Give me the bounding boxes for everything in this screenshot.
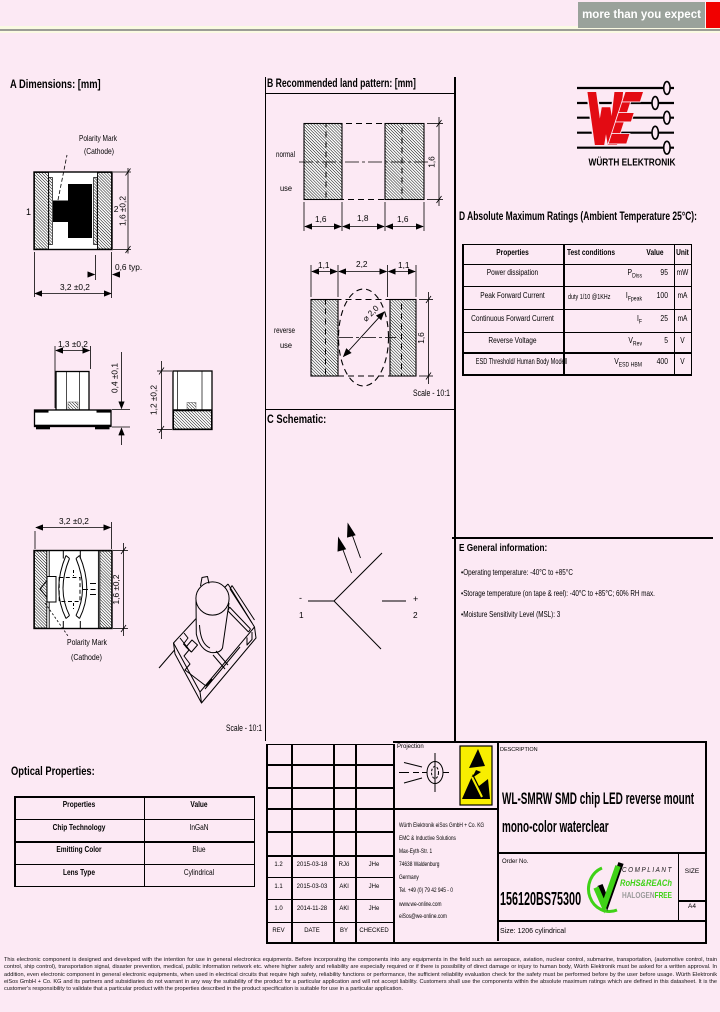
svg-text:1,1: 1,1 — [318, 260, 330, 270]
svg-text:use: use — [280, 183, 292, 193]
svg-text:1,6: 1,6 — [427, 156, 437, 168]
svg-text:1,6: 1,6 — [397, 214, 409, 224]
svg-text:2: 2 — [413, 610, 418, 620]
svg-text:1,1: 1,1 — [398, 260, 410, 270]
svg-text:1: 1 — [299, 610, 304, 620]
svg-text:1,6: 1,6 — [416, 332, 426, 344]
svg-text:2,2: 2,2 — [356, 259, 368, 269]
svg-text:reverse: reverse — [274, 325, 295, 335]
svg-text:normal: normal — [276, 149, 295, 159]
svg-text:1,8: 1,8 — [357, 213, 369, 223]
svg-text:1,6: 1,6 — [315, 214, 327, 224]
svg-text:use: use — [280, 340, 292, 350]
svg-text:-: - — [299, 593, 302, 603]
svg-text:+: + — [413, 594, 418, 604]
svg-text:Scale - 10:1: Scale - 10:1 — [413, 388, 450, 398]
svg-text:⌀ 2,0: ⌀ 2,0 — [360, 303, 381, 324]
